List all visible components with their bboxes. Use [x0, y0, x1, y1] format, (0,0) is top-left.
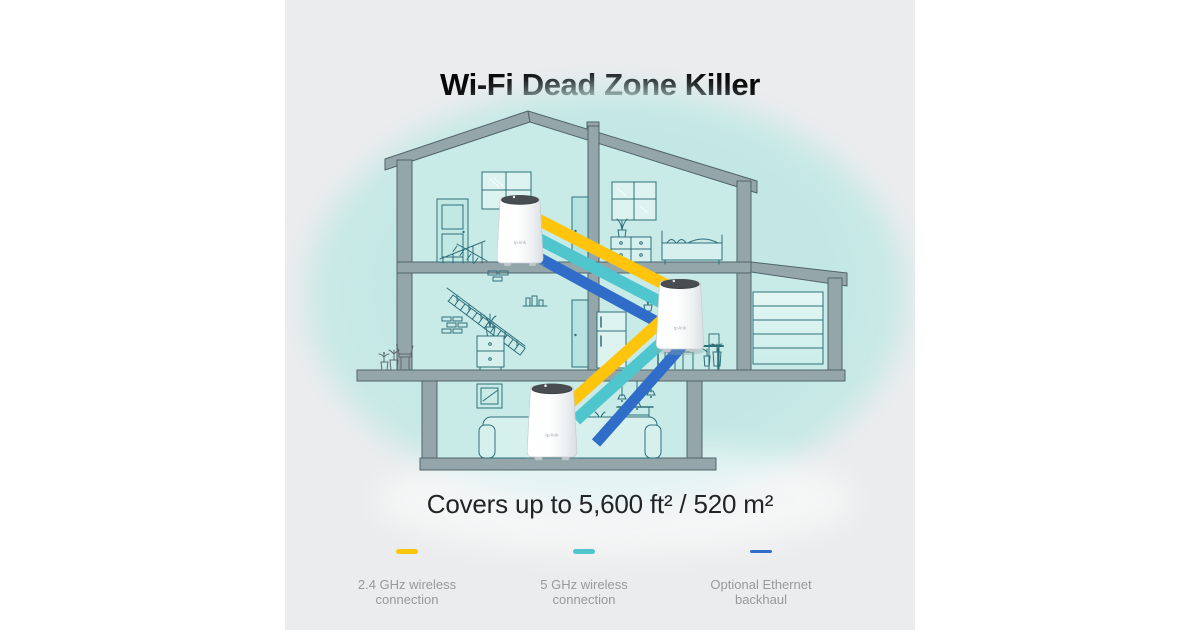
legend-label-5ghz: 5 GHz wireless connection	[499, 577, 669, 607]
legend-dash-ethernet	[750, 550, 772, 553]
legend-item-5ghz: 5 GHz wireless connection	[499, 541, 669, 607]
house-illustration: tp-link	[285, 0, 915, 630]
deco-unit-attic	[496, 195, 544, 269]
deco-unit-living-room	[526, 384, 578, 464]
legend-label-24ghz: 2.4 GHz wireless connection	[322, 577, 492, 607]
image-canvas: Wi-Fi Dead Zone Killer	[285, 0, 915, 630]
legend-dash-24ghz	[396, 549, 418, 554]
legend-item-ethernet: Optional Ethernet backhaul	[676, 541, 846, 607]
legend-label-ethernet: Optional Ethernet backhaul	[676, 577, 846, 607]
legend-item-24ghz: 2.4 GHz wireless connection	[322, 541, 492, 607]
coverage-text: Covers up to 5,600 ft² / 520 m²	[285, 489, 915, 520]
deco-unit-kitchen	[655, 279, 704, 355]
legend-dash-5ghz	[573, 549, 595, 554]
